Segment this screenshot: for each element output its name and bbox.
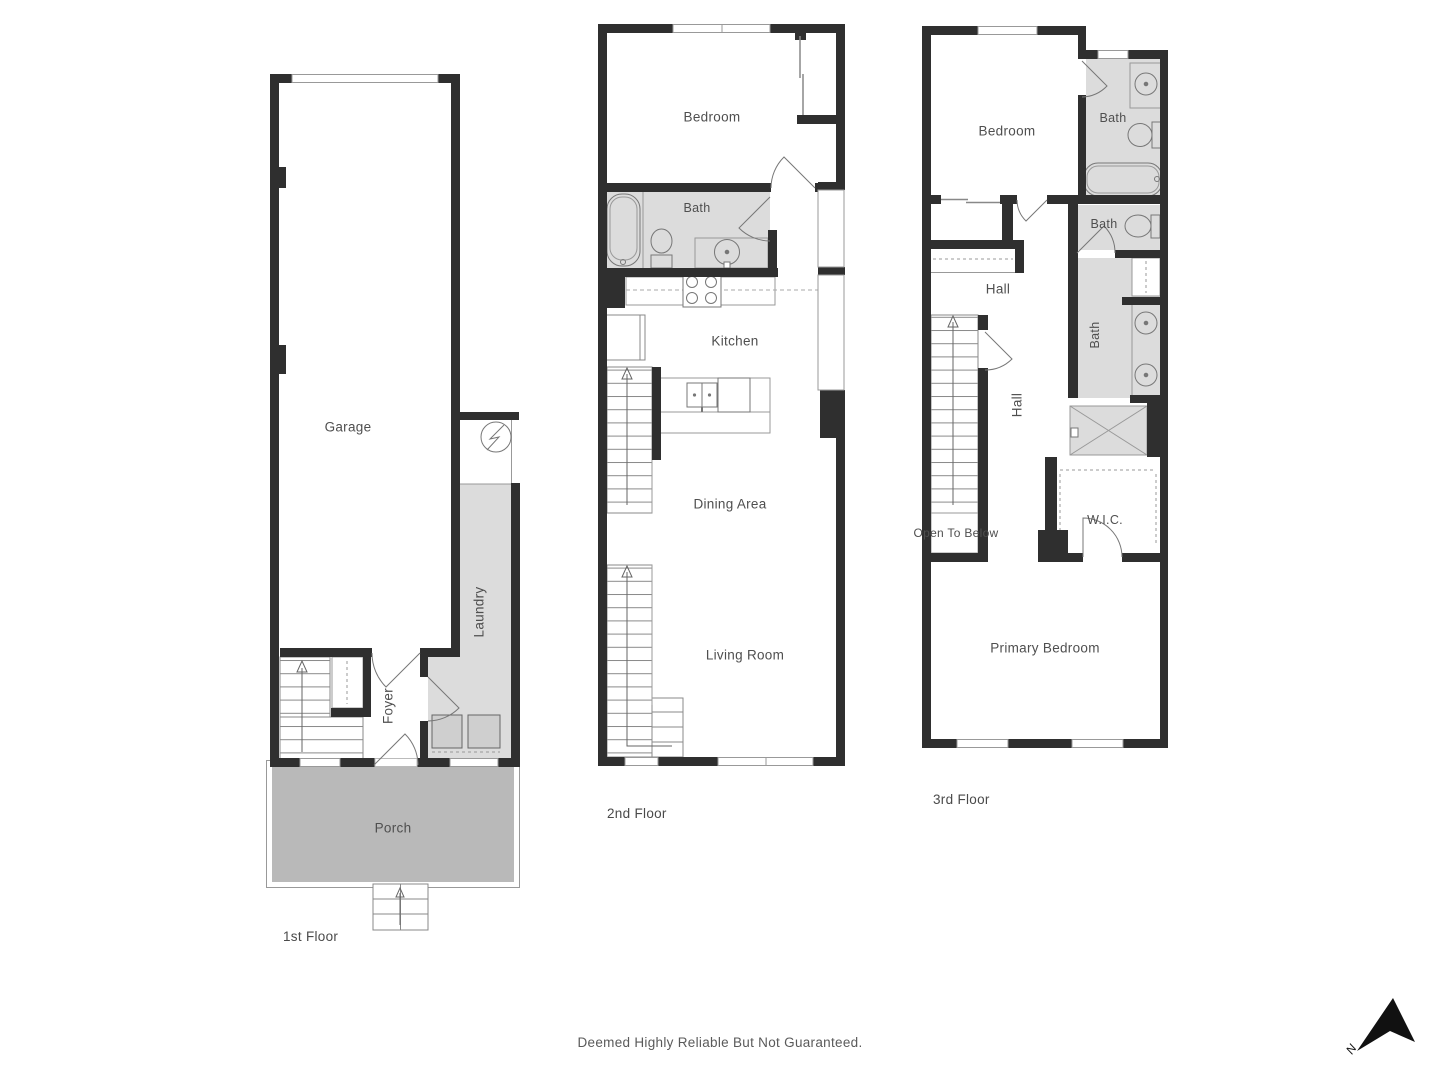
room-label-bath: Bath <box>684 201 711 215</box>
room-label-bedroom: Bedroom <box>684 110 741 125</box>
floor-label-1st: 1st Floor <box>283 929 338 944</box>
shower-icon <box>1070 406 1147 455</box>
room-label-bath: Bath <box>1088 322 1102 349</box>
toilet-icon <box>1125 215 1151 237</box>
wic-rods <box>1060 470 1156 545</box>
room-label-primary: Primary Bedroom <box>990 641 1100 656</box>
third-floor-plan: Bedroom Bath Bath Hall Hall Bath Open To… <box>917 24 1171 814</box>
first-floor-drawing <box>266 68 526 948</box>
room-label-living: Living Room <box>706 648 784 663</box>
room-label-bedroom: Bedroom <box>979 124 1036 139</box>
floor-label-2nd: 2nd Floor <box>607 806 667 821</box>
room-label-porch: Porch <box>375 821 412 836</box>
room-label-bath-mid: Bath <box>1091 217 1118 231</box>
toilet-icon <box>651 229 672 253</box>
electrical-meter-icon <box>481 422 511 452</box>
room-label-garage: Garage <box>325 420 372 435</box>
second-floor-drawing <box>595 24 847 824</box>
room-label-open-to-below: Open To Below <box>913 526 998 540</box>
room-label-wic: W.I.C. <box>1087 513 1123 527</box>
third-floor-drawing <box>917 24 1171 814</box>
kitchen-island <box>660 378 770 433</box>
room-label-foyer: Foyer <box>381 688 396 724</box>
disclaimer-text: Deemed Highly Reliable But Not Guarantee… <box>0 1035 1440 1050</box>
entry-steps <box>373 884 428 930</box>
first-floor-plan: Garage Laundry Foyer Porch 1st Floor <box>266 68 526 948</box>
room-label-kitchen: Kitchen <box>711 334 758 349</box>
second-floor-plan: Bedroom Bath Kitchen Dining Area Living … <box>595 24 847 824</box>
room-label-hall-top: Hall <box>986 282 1010 297</box>
room-label-bath-top: Bath <box>1100 111 1127 125</box>
stairs <box>931 315 978 553</box>
north-label: N <box>1343 1041 1360 1056</box>
fridge-icon <box>604 315 645 360</box>
room-label-laundry: Laundry <box>472 587 487 638</box>
closet-sliding-door <box>800 36 803 115</box>
floorplan-sheet: Garage Laundry Foyer Porch 1st Floor <box>0 0 1440 1080</box>
toilet-icon <box>1128 124 1152 147</box>
foyer-closet <box>332 657 363 708</box>
floor-label-3rd: 3rd Floor <box>933 792 990 807</box>
room-label-dining: Dining Area <box>693 497 766 512</box>
room-label-hall: Hall <box>1010 393 1025 417</box>
north-arrow-icon: N <box>1340 985 1440 1075</box>
